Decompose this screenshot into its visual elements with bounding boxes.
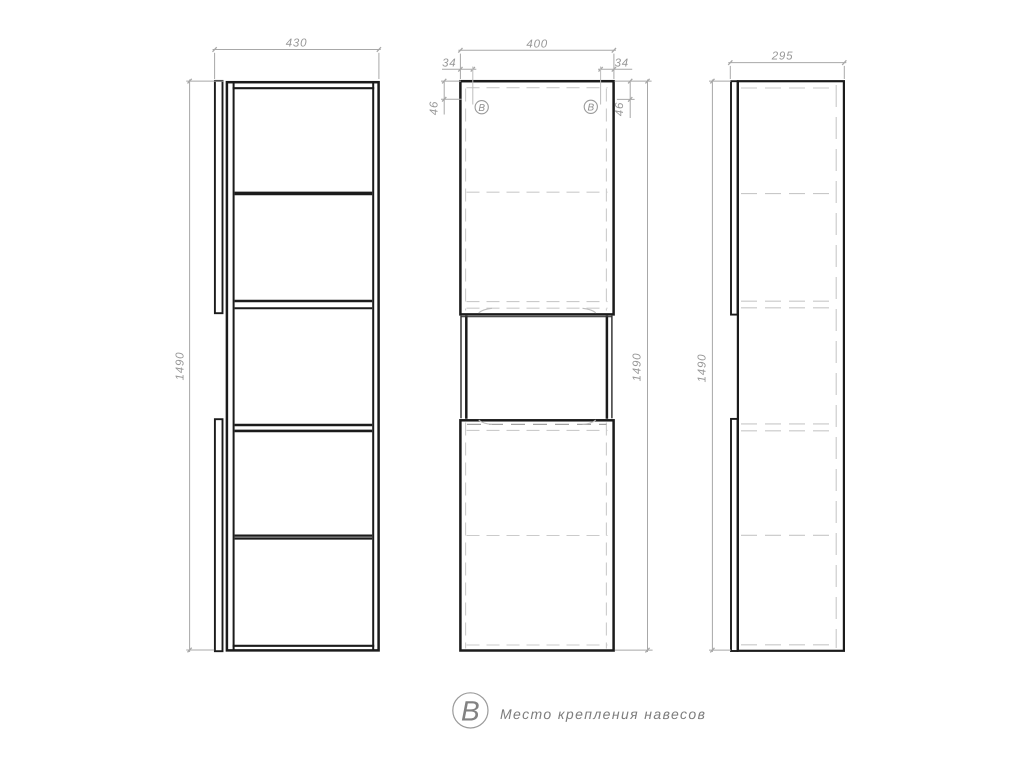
svg-text:430: 430 — [286, 38, 308, 50]
svg-text:400: 400 — [526, 38, 548, 50]
svg-text:В: В — [461, 695, 480, 726]
svg-text:В: В — [587, 102, 594, 113]
svg-text:34: 34 — [442, 58, 456, 70]
svg-text:Место крепления навесов: Место крепления навесов — [500, 706, 706, 722]
svg-text:1490: 1490 — [631, 353, 643, 382]
svg-text:1490: 1490 — [175, 352, 187, 381]
svg-text:46: 46 — [614, 102, 626, 116]
svg-text:46: 46 — [428, 101, 440, 115]
svg-text:1490: 1490 — [696, 354, 708, 383]
svg-text:34: 34 — [615, 58, 629, 70]
svg-text:295: 295 — [771, 51, 794, 63]
svg-text:В: В — [478, 103, 485, 114]
